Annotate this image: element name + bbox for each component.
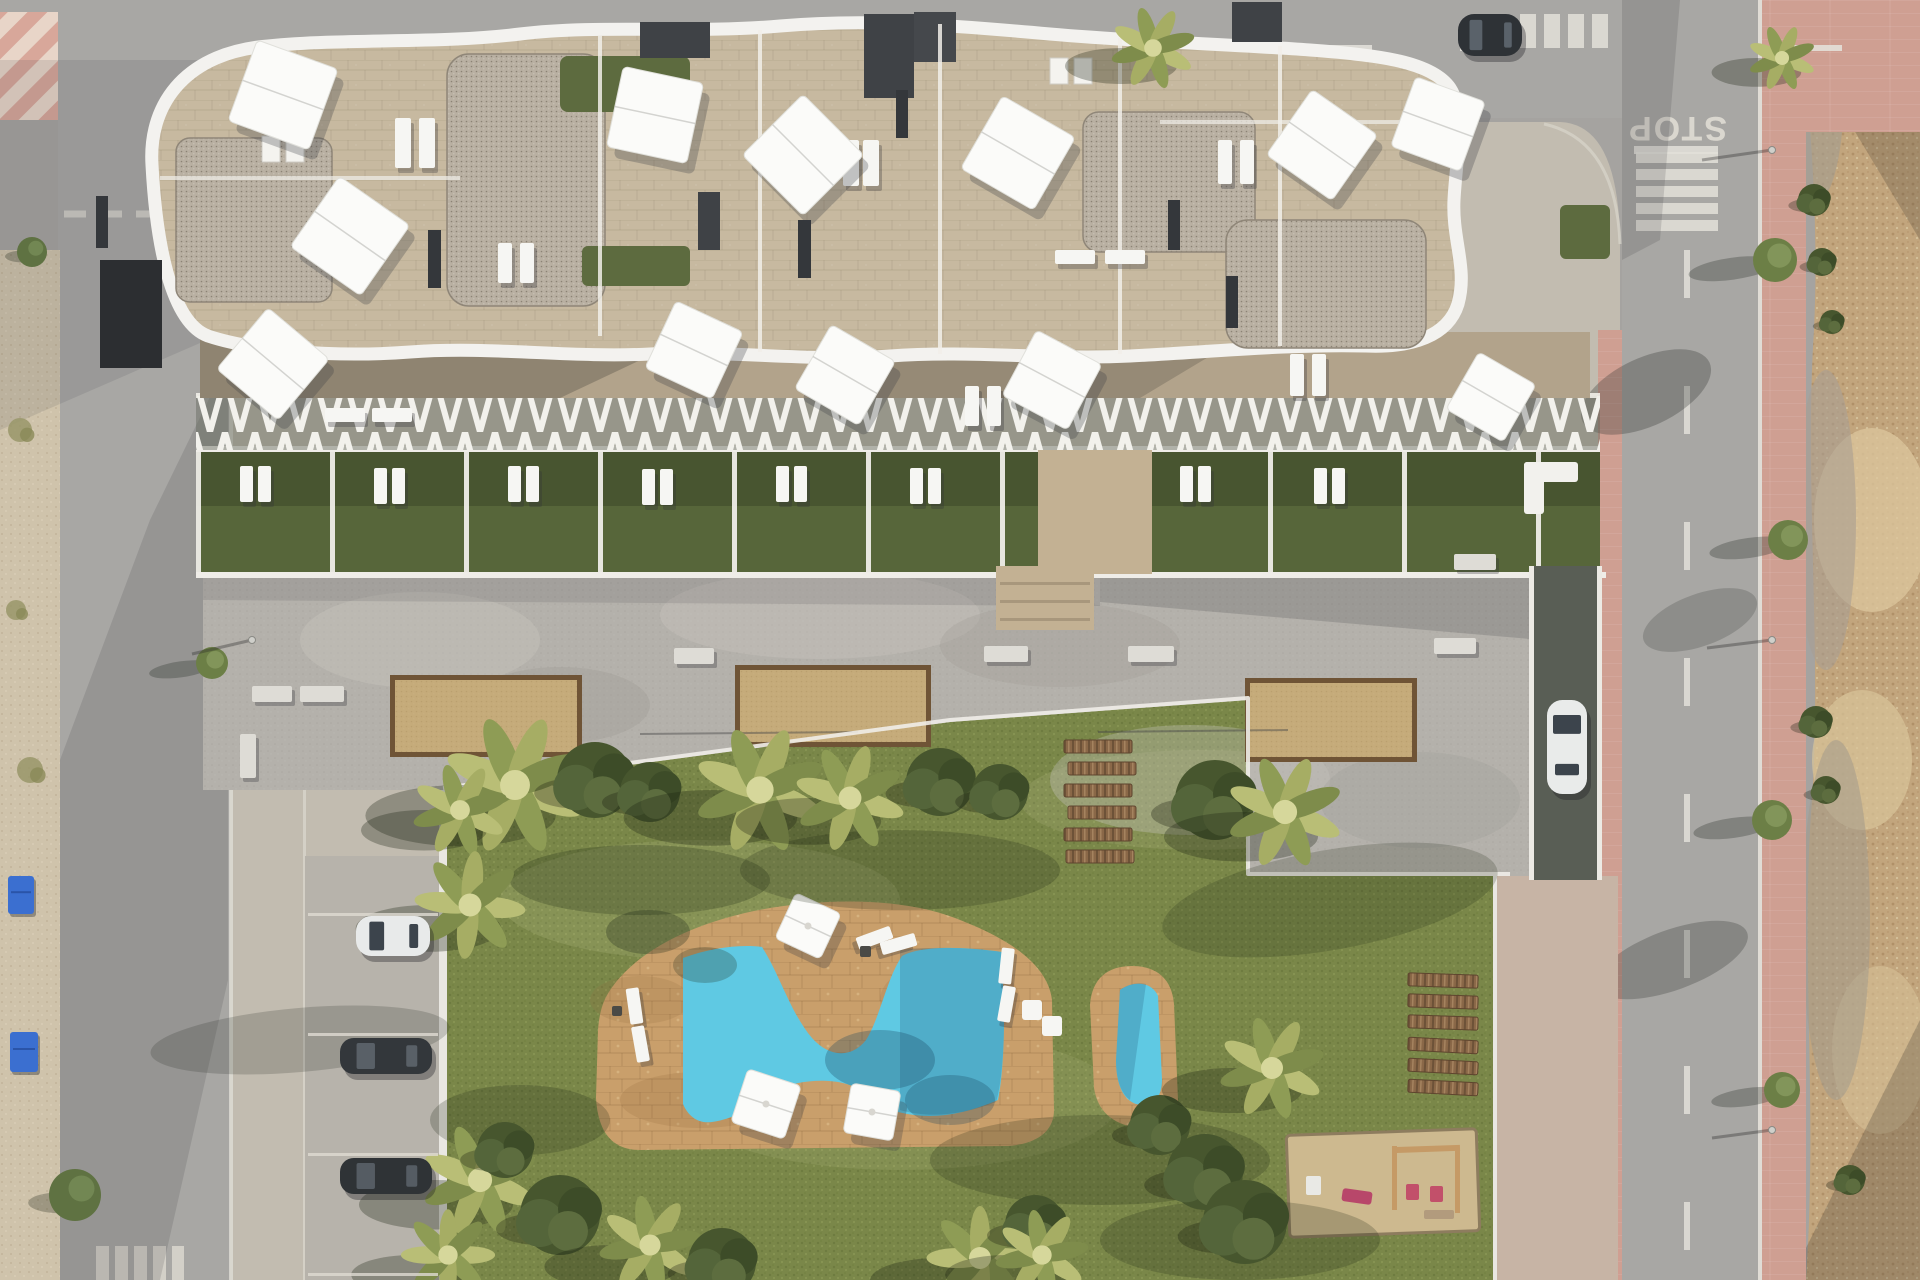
garden-bottom-wall xyxy=(196,572,1606,578)
garden-lounger xyxy=(508,466,524,507)
wood-lounger xyxy=(1408,973,1478,988)
roof-wall-line xyxy=(1278,46,1282,346)
scene-root: STOP xyxy=(0,0,1920,1280)
garden-sofa xyxy=(1524,462,1544,514)
garden-lounger xyxy=(1180,466,1196,507)
car-top-road xyxy=(1458,14,1526,62)
entrance-patio xyxy=(1038,450,1152,574)
terrace-bench xyxy=(1454,554,1499,574)
palm-shadow-on-lawn xyxy=(510,845,770,915)
parked-car-dark xyxy=(340,1158,436,1200)
garden-lounger xyxy=(642,469,658,510)
entrance-step xyxy=(1000,618,1090,621)
roof-wall-line xyxy=(758,30,762,352)
pool-pad xyxy=(1022,1000,1042,1020)
concrete-mottle xyxy=(300,592,540,688)
parked-car-dark xyxy=(340,1038,436,1080)
dark-roof-box xyxy=(864,14,914,98)
wood-lounger xyxy=(1408,1015,1478,1030)
roof-lounger xyxy=(372,408,415,427)
terrace-bench xyxy=(300,686,347,706)
palm-shadow-on-water xyxy=(905,1075,995,1125)
entrance-step xyxy=(1000,582,1090,585)
palm-shadow-on-water xyxy=(825,1030,935,1090)
stair-core-shadow xyxy=(100,260,162,368)
roof-lounger xyxy=(1055,250,1098,269)
wood-step xyxy=(1064,740,1132,753)
garden-lounger xyxy=(1314,468,1330,509)
parking-line xyxy=(308,1273,438,1276)
parking-line xyxy=(308,913,438,916)
garden-lounger xyxy=(392,468,408,509)
recycling-bin xyxy=(10,1032,40,1075)
terrace-bench xyxy=(674,648,717,668)
roof-wall-line xyxy=(598,36,602,336)
concrete-mottle xyxy=(1320,752,1520,848)
terrace-bench xyxy=(984,646,1031,666)
garden-lounger xyxy=(794,466,810,507)
dark-roof-box xyxy=(698,192,720,250)
curb xyxy=(1493,876,1497,1280)
ramp-wall xyxy=(1597,566,1602,880)
roof-lounger xyxy=(987,386,1004,431)
palm-shadow-on-deck xyxy=(606,910,690,954)
pool-side-table xyxy=(612,1006,622,1016)
dark-roof-box xyxy=(640,22,710,58)
shade-sail xyxy=(606,66,710,174)
scene-svg: STOP xyxy=(0,0,1920,1280)
garden-lounger xyxy=(928,468,944,509)
garden-lounger xyxy=(776,466,792,507)
play-bench xyxy=(1424,1210,1454,1219)
garden-lounger xyxy=(1198,466,1214,507)
corner-hedge xyxy=(1560,205,1610,259)
parking-line xyxy=(308,1153,438,1156)
wood-step xyxy=(1064,784,1132,797)
terrace-bench xyxy=(1434,638,1479,658)
roof-lounger xyxy=(1105,250,1148,269)
wood-lounger xyxy=(1408,994,1478,1009)
skylight xyxy=(1226,276,1238,328)
garden-lounger xyxy=(660,469,676,510)
skylight xyxy=(428,230,441,288)
skylight xyxy=(896,90,908,138)
roof-wall-line xyxy=(160,176,460,180)
garden-lounger xyxy=(258,466,274,507)
dark-roof-box xyxy=(1232,2,1282,42)
wood-step xyxy=(1068,762,1136,775)
driveway xyxy=(1497,876,1618,1280)
roof-lounger xyxy=(419,118,438,173)
roof-gravel-patch xyxy=(1226,220,1426,348)
parked-car-white xyxy=(356,916,434,962)
car-on-ramp xyxy=(1547,700,1591,800)
roof-wall-line xyxy=(938,24,942,354)
roof-wall-line xyxy=(1118,38,1122,354)
recycling-bin xyxy=(8,876,36,917)
garden-lounger xyxy=(1332,468,1348,509)
garden-lounger xyxy=(526,466,542,507)
roof-lounger xyxy=(1290,354,1307,401)
roof-lounger xyxy=(965,386,982,431)
pool-parasol xyxy=(843,1083,908,1152)
skylight xyxy=(96,196,108,248)
swing-leg xyxy=(1455,1149,1460,1213)
swing-seat xyxy=(1430,1186,1443,1202)
roof-lounger xyxy=(1218,140,1235,189)
roof-lounger xyxy=(395,118,414,173)
entrance-step xyxy=(1000,600,1090,603)
skylight xyxy=(798,220,811,278)
parking-line xyxy=(308,1033,438,1036)
roof-lounger xyxy=(520,243,537,288)
garden-lounger xyxy=(374,468,390,509)
skylight xyxy=(1168,200,1180,250)
wood-step xyxy=(1064,828,1132,841)
aerial-photo-canvas: STOP xyxy=(0,0,1920,1280)
terrace-bench xyxy=(240,734,259,782)
pool-pad xyxy=(1042,1016,1062,1036)
wood-step xyxy=(1068,806,1136,819)
dark-roof-box xyxy=(914,12,956,62)
swing-leg xyxy=(1392,1146,1397,1210)
garden-lounger xyxy=(910,468,926,509)
roof-lounger xyxy=(1240,140,1257,189)
ramp-wall xyxy=(1529,566,1534,880)
roof-lounger xyxy=(325,408,368,427)
roof-lounger xyxy=(1312,354,1329,401)
play-toy xyxy=(1306,1176,1321,1195)
pool-side-table xyxy=(860,946,871,957)
terrace-bench xyxy=(252,686,295,706)
swing-seat xyxy=(1406,1184,1419,1200)
roof-lounger xyxy=(498,243,515,288)
sand-planter xyxy=(1245,678,1417,762)
wood-step xyxy=(1066,850,1134,863)
roof-hatch xyxy=(1050,58,1068,84)
garden-lounger xyxy=(240,466,256,507)
terrace-bench xyxy=(1128,646,1177,666)
palm-shadow-on-deck xyxy=(673,947,737,983)
